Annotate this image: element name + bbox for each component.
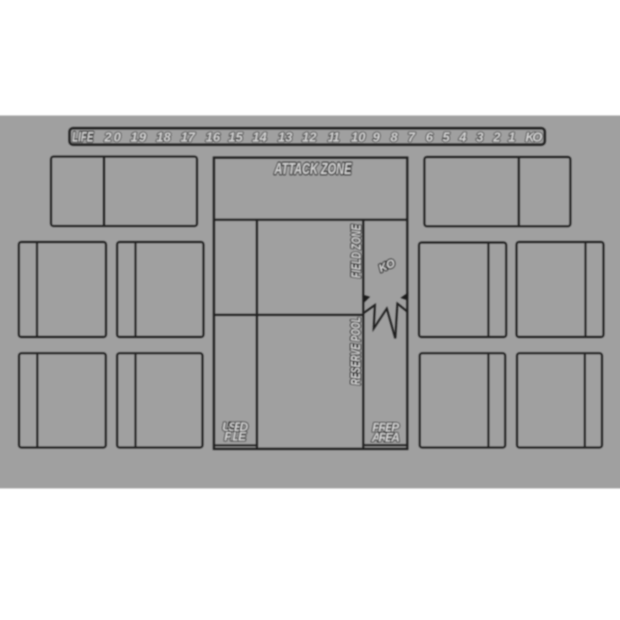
svg-text:16: 16	[206, 129, 221, 144]
svg-text:4: 4	[458, 129, 467, 144]
svg-text:FIELD ZONE: FIELD ZONE	[348, 224, 363, 278]
svg-text:10: 10	[351, 129, 366, 144]
svg-text:1: 1	[508, 129, 515, 144]
svg-text:3: 3	[476, 129, 484, 144]
svg-text:RESERVE POOL: RESERVE POOL	[349, 317, 363, 385]
svg-text:AREA: AREA	[371, 431, 400, 445]
svg-text:19: 19	[131, 129, 147, 144]
svg-text:18: 18	[156, 129, 171, 144]
svg-text:2: 2	[492, 129, 501, 144]
svg-text:17: 17	[181, 129, 196, 144]
svg-text:PILE: PILE	[224, 430, 247, 444]
svg-text:LIFE: LIFE	[72, 128, 93, 144]
svg-text:11: 11	[328, 129, 340, 144]
svg-text:7: 7	[408, 129, 416, 144]
svg-text:13: 13	[278, 129, 293, 144]
svg-text:8: 8	[390, 129, 398, 144]
svg-text:6: 6	[426, 129, 434, 144]
svg-text:KO: KO	[525, 129, 542, 144]
svg-text:5: 5	[442, 129, 450, 144]
svg-text:15: 15	[228, 129, 243, 144]
svg-text:ATTACK ZONE: ATTACK ZONE	[274, 161, 353, 178]
svg-text:12: 12	[302, 129, 317, 144]
svg-text:9: 9	[373, 129, 381, 144]
svg-text:14: 14	[252, 129, 267, 144]
